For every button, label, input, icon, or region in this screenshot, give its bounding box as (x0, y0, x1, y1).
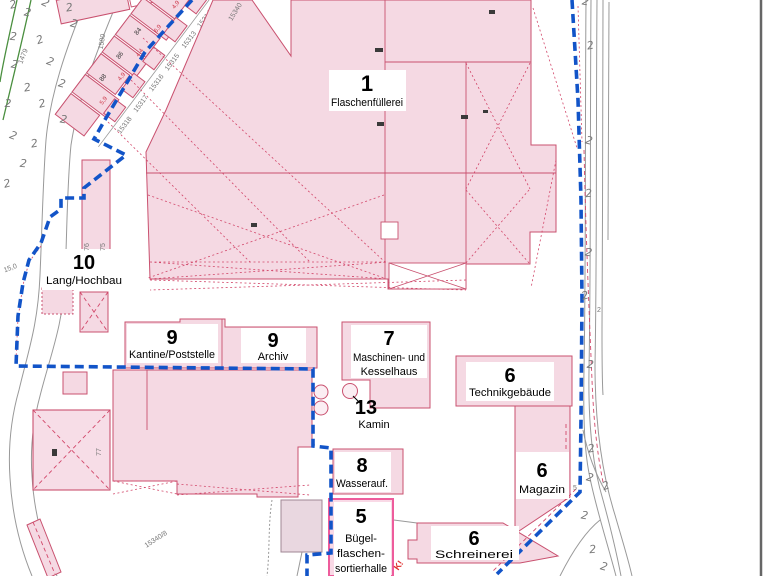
label-flaschenfuellerei: 1 Flaschenfüllerei (329, 70, 406, 111)
tree-icon: 2 (586, 358, 594, 372)
label-lang-hochbau: 10 Lang/Hochbau (42, 249, 125, 290)
building-central-hall (113, 370, 312, 497)
site-plan-map: 153181531715316153151531315314153125,94,… (0, 0, 768, 576)
tree-icon: 2 (587, 442, 596, 456)
label-number: 8 (356, 455, 367, 477)
label-name: Flaschenfüllerei (331, 97, 403, 109)
tree-icon: 2 (581, 0, 590, 9)
label-schreinerei: 6 Schreinerei (431, 526, 519, 561)
tree-icon: 2 (584, 246, 593, 260)
survey-mark (483, 110, 488, 113)
label-number: 6 (504, 365, 515, 387)
label-number: 7 (383, 328, 394, 350)
label-name-line2: Kesselhaus (361, 366, 418, 378)
label-name: Technikgebäude (469, 387, 551, 399)
label-number: 13 (355, 397, 377, 419)
label-number: 9 (267, 330, 278, 352)
tree-icon: 2 (23, 81, 32, 95)
label-name: Schreinerei (435, 549, 513, 561)
tree-icon: 2 (34, 32, 45, 47)
tree-icon: 2 (5, 97, 12, 110)
survey-mark (52, 449, 57, 456)
tree-icon: 2 (37, 96, 47, 110)
survey-mark (461, 115, 468, 119)
survey-mark (375, 48, 383, 52)
parcel-label: 2 (597, 307, 601, 314)
tree-icon: 2 (589, 543, 597, 557)
tree-icon: 2 (2, 176, 12, 190)
survey-mark (251, 223, 257, 227)
label-name-line1: Maschinen- und (353, 352, 425, 364)
label-number: 5 (355, 506, 366, 528)
parcel-label: 77 (96, 448, 103, 456)
parcel-label: 15340/8 (144, 530, 169, 550)
building-annex (281, 500, 322, 552)
label-name: Kamin (358, 419, 389, 431)
label-number: 10 (73, 252, 95, 274)
label-archiv: 9 Archiv (241, 328, 306, 363)
label-wasseraufbereitung: 8 Wasserauf. (335, 452, 391, 492)
label-name-line1: Bügel- (345, 533, 377, 545)
label-name-line2: flaschen- (337, 548, 385, 560)
tree-icon: 2 (8, 128, 19, 143)
label-kantine-poststelle: 9 Kantine/Poststelle (127, 324, 218, 363)
building-flaschenfuellerei (108, 0, 577, 290)
parcel-label: 76 (84, 243, 91, 251)
tree-icon: 2 (600, 478, 611, 493)
tree-icon: 2 (19, 157, 27, 171)
tree-icon: 2 (40, 0, 52, 10)
label-name: Lang/Hochbau (46, 275, 122, 287)
label-name: Magazin (519, 484, 565, 496)
tree-icon: 2 (586, 39, 595, 53)
tree-icon: 2 (9, 30, 17, 44)
tree-icon: 2 (30, 137, 39, 151)
label-name-line3: sortierhalle (335, 563, 387, 575)
tree-icon: 2 (580, 509, 589, 523)
tree-icon: 2 (59, 113, 68, 127)
tree-icon: 2 (585, 187, 593, 201)
label-magazin: 6 Magazin (516, 452, 569, 499)
tree-icon: 2 (45, 54, 56, 69)
parcel-label: 75 (100, 243, 107, 251)
label-name: Archiv (258, 351, 289, 363)
site-plan-page: 153181531715316153151531315314153125,94,… (0, 0, 768, 576)
parcel-label: 15,0 (3, 263, 18, 274)
survey-mark (489, 10, 495, 14)
label-buegelflaschensortierhalle: 5 Bügel- flaschen- sortierhalle (334, 502, 391, 576)
tree-icon: 2 (23, 6, 32, 20)
label-name: Kantine/Poststelle (129, 349, 215, 361)
label-technikgebaeude: 6 Technikgebäude (466, 362, 554, 401)
label-number: 6 (536, 460, 547, 482)
survey-mark (377, 122, 384, 126)
tree-icon: 2 (599, 559, 609, 573)
label-number: 9 (166, 327, 177, 349)
parcel-label: 5 (573, 485, 577, 492)
building-roadside-shed (27, 519, 61, 576)
tree-icon: 2 (585, 470, 595, 484)
label-number: 6 (468, 528, 479, 550)
label-number: 1 (361, 71, 373, 96)
strip-parcel-number: 15316 (148, 73, 165, 93)
label-maschinen-kesselhaus: 7 Maschinen- und Kesselhaus (351, 325, 427, 378)
label-name: Wasserauf. (336, 478, 388, 490)
strip-parcel-number: 15315 (164, 53, 181, 73)
